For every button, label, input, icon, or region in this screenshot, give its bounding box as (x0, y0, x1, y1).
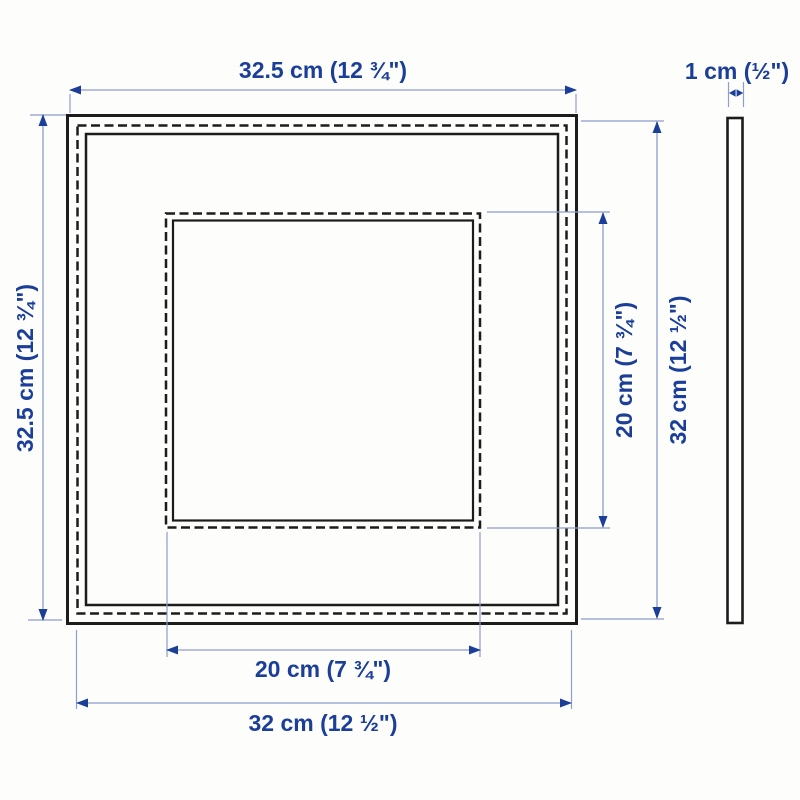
arrowhead-left-icon (166, 646, 178, 655)
arrowhead-left-icon (69, 86, 81, 95)
dim-thickness: 1 cm (½") (685, 58, 789, 107)
dim-label-thickness: 1 cm (½") (685, 58, 789, 84)
frame-inner-solid-border (86, 134, 558, 605)
diagram-canvas: 32.5 cm (12 ¾") 1 cm (½") 32.5 cm (12 ¾"… (0, 0, 800, 800)
frame-outer-border (68, 116, 577, 624)
arrowhead-right-icon (565, 86, 577, 95)
arrowhead-down-icon (599, 516, 608, 528)
dim-opening-width: 20 cm (7 ¾") (166, 532, 481, 682)
dim-label-opening-height: 20 cm (7 ¾") (611, 302, 637, 438)
dim-label-right-height: 32 cm (12 ½") (665, 296, 691, 445)
side-view (728, 118, 743, 623)
side-profile (728, 118, 743, 623)
dim-label-left-height: 32.5 cm (12 ¾") (12, 284, 38, 452)
dim-label-opening-width: 20 cm (7 ¾") (255, 656, 391, 682)
dim-label-bottom-width: 32 cm (12 ½") (249, 710, 398, 736)
arrowhead-left-icon (729, 89, 736, 97)
arrowhead-down-icon (653, 607, 662, 619)
front-view (68, 116, 577, 624)
dim-opening-height: 20 cm (7 ¾") (487, 212, 637, 528)
arrowhead-right-icon (737, 89, 744, 97)
dim-label-top-width: 32.5 cm (12 ¾") (239, 57, 407, 83)
arrowhead-left-icon (76, 699, 88, 708)
frame-outer-dashed-border (78, 126, 567, 614)
arrowhead-right-icon (469, 646, 481, 655)
arrowhead-up-icon (653, 121, 662, 133)
opening-dashed-border (166, 214, 480, 528)
arrowhead-up-icon (39, 114, 48, 126)
opening-solid-border (173, 221, 473, 521)
arrowhead-up-icon (599, 212, 608, 224)
dim-left-height: 32.5 cm (12 ¾") (12, 114, 66, 621)
arrowhead-down-icon (39, 609, 48, 621)
dim-top-width: 32.5 cm (12 ¾") (69, 57, 577, 113)
dim-bottom-width: 32 cm (12 ½") (76, 630, 572, 736)
arrowhead-right-icon (560, 699, 572, 708)
frame-dimension-diagram: 32.5 cm (12 ¾") 1 cm (½") 32.5 cm (12 ¾"… (0, 0, 800, 800)
